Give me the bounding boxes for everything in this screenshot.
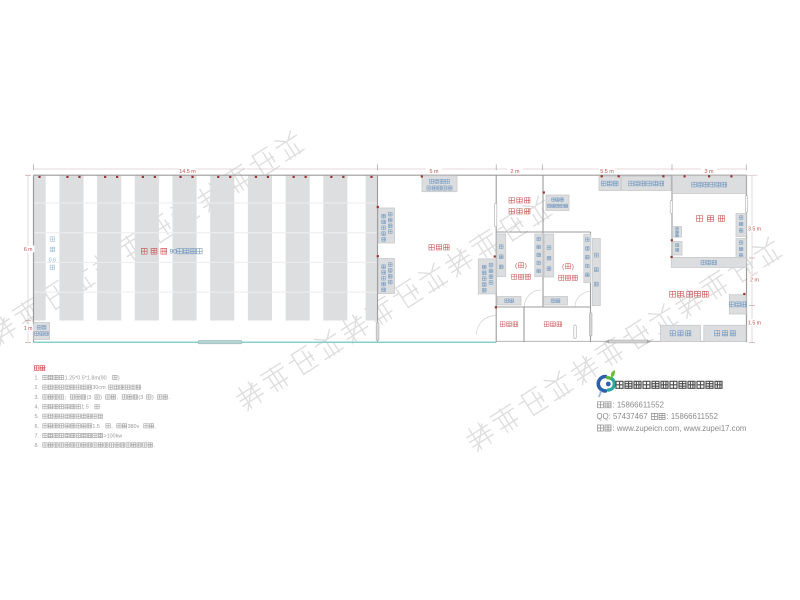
svg-text:3.5 m: 3.5 m [748, 226, 761, 232]
svg-text:2 m: 2 m [511, 169, 520, 175]
svg-text:.: . [153, 443, 155, 449]
svg-text:): ) [525, 263, 527, 270]
svg-text:): ) [118, 376, 120, 382]
svg-text:14.5 m: 14.5 m [179, 169, 196, 175]
svg-text:1 m: 1 m [24, 326, 33, 332]
svg-text:1.: 1. [35, 376, 40, 382]
svg-text:5.: 5. [35, 414, 40, 420]
svg-text:: 15866611552: : 15866611552 [667, 412, 718, 421]
svg-text::: : [45, 366, 46, 372]
svg-text:): ) [100, 395, 102, 401]
svg-text:1.5 m: 1.5 m [748, 320, 761, 326]
svg-text:2 m: 2 m [750, 278, 759, 284]
svg-text:(3: (3 [87, 395, 92, 401]
svg-text:: 15866611552: : 15866611552 [613, 401, 664, 410]
svg-text:): ) [152, 395, 154, 401]
svg-text:380v: 380v [128, 424, 140, 430]
svg-text:1.5: 1.5 [92, 424, 100, 430]
svg-text:6 m: 6 m [24, 247, 33, 253]
svg-text:3.: 3. [35, 395, 40, 401]
svg-text:8.: 8. [35, 443, 40, 449]
svg-text:,: , [684, 292, 686, 299]
svg-text:90: 90 [170, 249, 178, 256]
svg-text:3 m: 3 m [705, 169, 714, 175]
svg-text:5.5 m: 5.5 m [600, 169, 614, 175]
svg-text:2.: 2. [35, 385, 40, 391]
svg-text:(3: (3 [138, 395, 143, 401]
svg-text:5 m: 5 m [430, 169, 439, 175]
svg-text:.: . [168, 395, 170, 401]
svg-text:QQ: 57437467: QQ: 57437467 [597, 412, 648, 421]
svg-text:1.5: 1.5 [81, 405, 89, 411]
svg-text:4.: 4. [35, 405, 40, 411]
svg-text:): ) [572, 264, 574, 271]
svg-text:: www.zupeicn.com, www.zupei17: : www.zupeicn.com, www.zupei17.com [613, 424, 747, 433]
svg-text:>100kw: >100kw [103, 434, 122, 440]
svg-text:30cm: 30cm [92, 385, 106, 391]
svg-text:6.: 6. [35, 424, 40, 430]
svg-text:.: . [155, 424, 157, 430]
svg-text:1.25*0.5*1.8m(90: 1.25*0.5*1.8m(90 [65, 376, 107, 382]
svg-text:7.: 7. [35, 434, 40, 440]
svg-text:0.6: 0.6 [49, 257, 56, 263]
